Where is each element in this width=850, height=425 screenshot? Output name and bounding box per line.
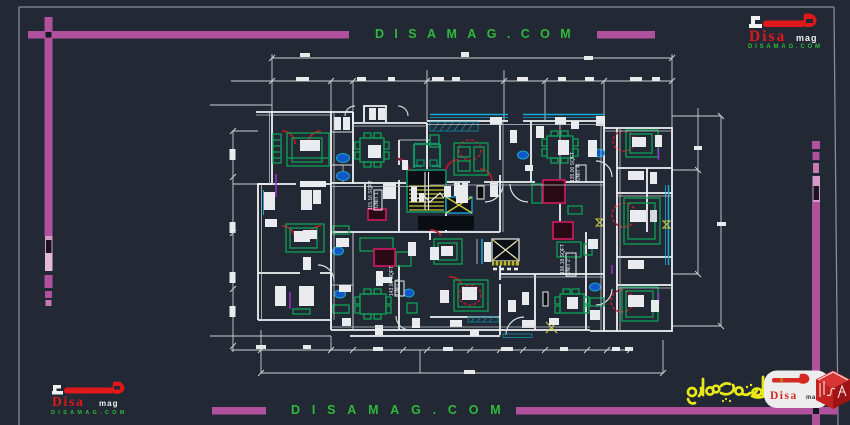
svg-text:Disa: Disa [749,28,786,45]
svg-text:135.00 SQFT: 135.00 SQFT [570,152,576,182]
svg-text:⁠g⁠: ⁠g⁠ [780,377,783,383]
svg-text:UNIT 4: UNIT 4 [576,165,582,181]
svg-text:UNIT 3: UNIT 3 [395,279,401,295]
svg-text:DISAMAG.COM: DISAMAG.COM [748,44,823,50]
svg-text:Disa: Disa [770,390,798,402]
svg-text:196.18 SQFT: 196.18 SQFT [560,244,566,274]
svg-text:Disa: Disa [52,394,85,409]
svg-text:DISAMAG.COM: DISAMAG.COM [51,410,128,416]
svg-text:UNIT 1: UNIT 1 [374,192,380,208]
svg-text:143.08 SQFT: 143.08 SQFT [389,266,395,296]
svg-text:DISAMAG.COM: DISAMAG.COM [291,403,512,417]
svg-text:UNIT 2: UNIT 2 [566,259,572,275]
svg-text:mag: mag [99,399,118,408]
svg-text:mag: mag [796,33,818,43]
svg-text:DISAMAG.COM: DISAMAG.COM [375,27,581,41]
